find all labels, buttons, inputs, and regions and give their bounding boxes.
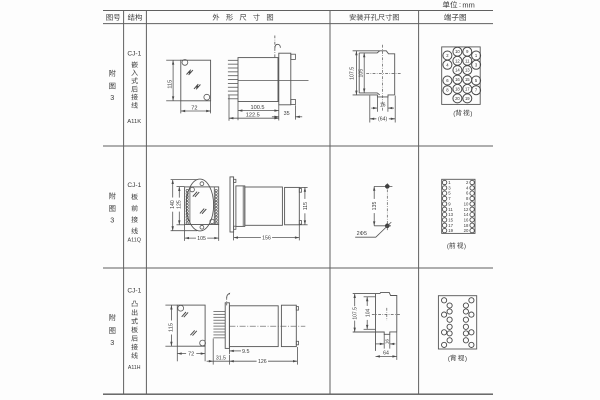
svg-text:135: 135 <box>372 202 378 211</box>
svg-text:115: 115 <box>168 80 174 89</box>
svg-text:156: 156 <box>262 236 271 242</box>
svg-text:3: 3 <box>110 338 114 347</box>
svg-text:): ) <box>464 243 466 250</box>
svg-text:105: 105 <box>197 236 206 242</box>
svg-text:72: 72 <box>188 351 194 357</box>
svg-text:115: 115 <box>169 323 175 332</box>
svg-text:125: 125 <box>176 200 182 209</box>
svg-text:3: 3 <box>110 216 114 225</box>
svg-text:31.5: 31.5 <box>216 356 226 362</box>
svg-text:107.5: 107.5 <box>349 67 355 80</box>
svg-text:CJ-1: CJ-1 <box>127 182 141 189</box>
svg-text:122.5: 122.5 <box>246 112 260 118</box>
svg-text:mm: mm <box>462 0 474 9</box>
svg-text:64: 64 <box>383 351 389 357</box>
svg-text:20: 20 <box>464 228 469 233</box>
svg-text:12: 12 <box>455 58 460 63</box>
svg-text:13: 13 <box>465 68 470 73</box>
svg-text:9.5: 9.5 <box>242 349 250 355</box>
svg-text:35: 35 <box>284 111 290 117</box>
svg-text:CJ-1: CJ-1 <box>127 51 141 58</box>
svg-text:10: 10 <box>455 49 460 54</box>
svg-text:18: 18 <box>464 223 469 228</box>
svg-text:104: 104 <box>365 309 371 318</box>
svg-text:13: 13 <box>448 212 453 217</box>
svg-text:15: 15 <box>465 77 470 82</box>
svg-text:): ) <box>470 110 472 117</box>
svg-text:14: 14 <box>455 68 460 73</box>
svg-text:105: 105 <box>358 69 364 78</box>
svg-text:16: 16 <box>385 339 391 345</box>
svg-text:17: 17 <box>448 223 453 228</box>
svg-text:(64): (64) <box>378 117 387 123</box>
svg-text::: : <box>459 0 461 9</box>
svg-text:17: 17 <box>465 86 470 91</box>
svg-text:115: 115 <box>303 202 309 210</box>
svg-text:16: 16 <box>464 217 469 222</box>
svg-text:16: 16 <box>380 102 386 108</box>
svg-text:2Φ5: 2Φ5 <box>357 231 367 237</box>
svg-text:19: 19 <box>465 96 470 101</box>
svg-text:15: 15 <box>448 217 453 222</box>
svg-text:18: 18 <box>455 86 460 91</box>
svg-text:3: 3 <box>110 93 114 102</box>
svg-text:140: 140 <box>170 200 176 209</box>
svg-text:11: 11 <box>465 58 470 63</box>
svg-text:16: 16 <box>455 77 460 82</box>
svg-text:19: 19 <box>448 228 453 233</box>
svg-text:A11K: A11K <box>127 119 141 125</box>
svg-text:A11H: A11H <box>128 365 141 371</box>
svg-text:20: 20 <box>455 96 460 101</box>
svg-text:11: 11 <box>448 207 453 212</box>
svg-text:10: 10 <box>464 201 469 206</box>
svg-text:72: 72 <box>191 105 197 111</box>
svg-text:A11Q: A11Q <box>128 238 141 244</box>
svg-text:107.5: 107.5 <box>353 307 359 320</box>
svg-text:): ) <box>465 355 467 362</box>
svg-text:126: 126 <box>258 359 267 365</box>
svg-text:CJ-1: CJ-1 <box>127 288 141 295</box>
svg-text:14: 14 <box>464 212 469 217</box>
svg-text:100.5: 100.5 <box>251 105 265 111</box>
svg-text:12: 12 <box>464 207 469 212</box>
